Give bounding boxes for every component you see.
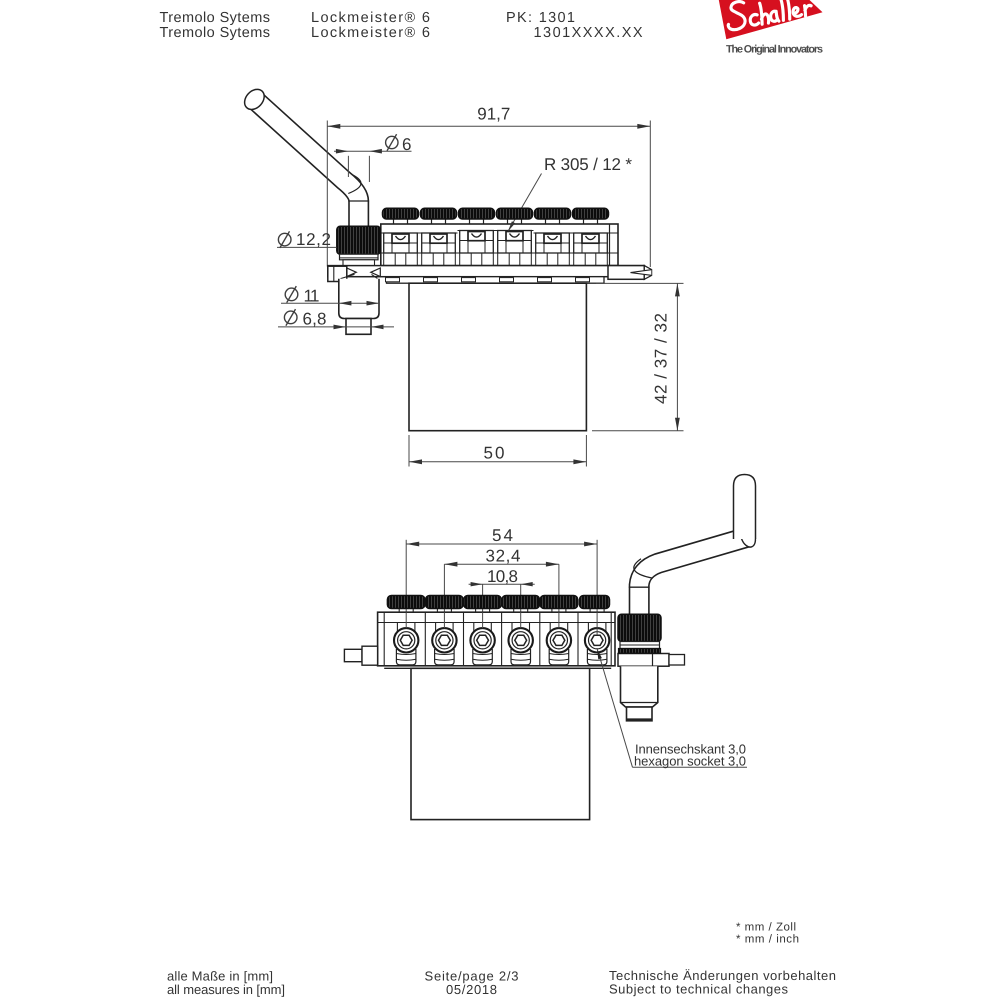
svg-text:Subject to technical changes: Subject to technical changes <box>609 981 789 996</box>
svg-text:PK: 1301: PK: 1301 <box>506 10 575 26</box>
svg-text:12,2: 12,2 <box>296 230 331 249</box>
svg-text:1301XXXX.XX: 1301XXXX.XX <box>534 25 643 41</box>
svg-text:32,4: 32,4 <box>486 547 521 566</box>
svg-text:all measures in [mm]: all measures in [mm] <box>167 982 285 997</box>
svg-text:Tremolo Sytems: Tremolo Sytems <box>160 25 271 41</box>
svg-text:Tremolo Sytems: Tremolo Sytems <box>160 10 271 26</box>
svg-text:6,8: 6,8 <box>303 309 327 328</box>
svg-text:* mm / inch: * mm / inch <box>736 934 799 946</box>
svg-text:* mm / Zoll: * mm / Zoll <box>736 921 796 933</box>
svg-text:hexagon socket 3,0: hexagon socket 3,0 <box>634 754 746 769</box>
svg-text:42 / 37 / 32: 42 / 37 / 32 <box>652 313 671 404</box>
svg-text:11: 11 <box>304 286 320 305</box>
svg-text:R 305 / 12 *: R 305 / 12 * <box>544 155 632 174</box>
svg-text:91,7: 91,7 <box>477 105 510 124</box>
svg-text:10,8: 10,8 <box>487 567 518 586</box>
svg-text:05/2018: 05/2018 <box>446 982 497 997</box>
svg-text:6: 6 <box>402 135 411 154</box>
svg-text:The Original Innovators: The Original Innovators <box>726 44 823 56</box>
